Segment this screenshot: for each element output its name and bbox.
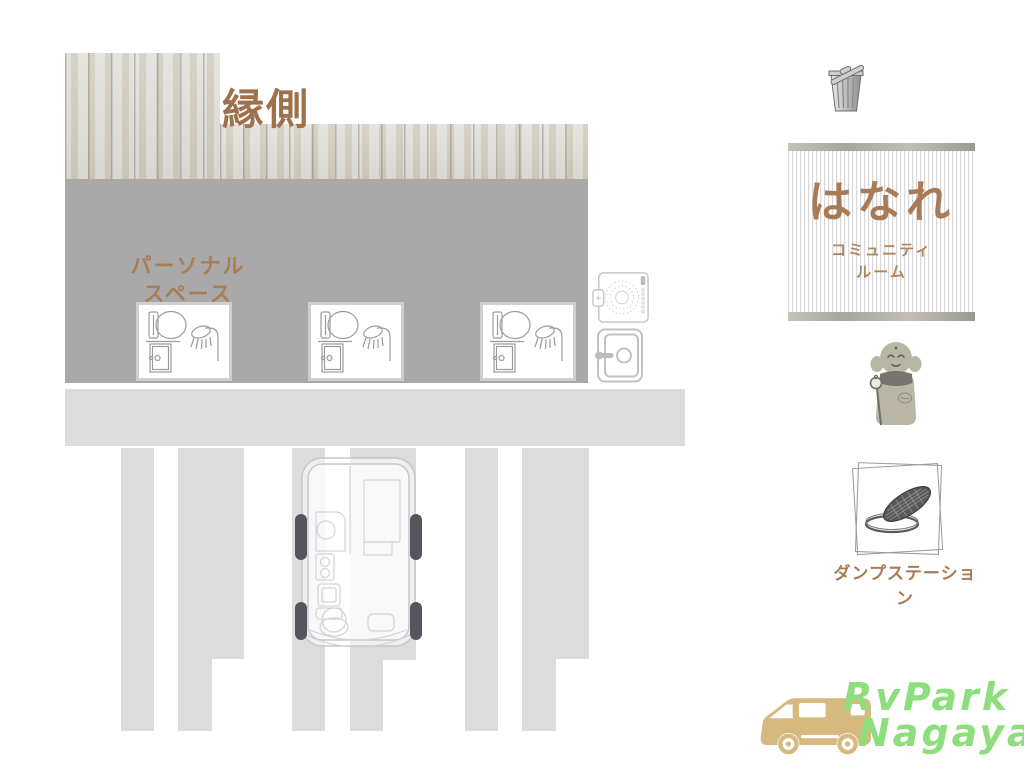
engawa-label: 縁側 bbox=[222, 76, 392, 137]
parking-stripe bbox=[465, 448, 498, 731]
personal-space-label: パーソナル スペース bbox=[118, 252, 258, 308]
hanare-sign: はなれ コミュニティ ルーム bbox=[788, 143, 975, 321]
sign-subtitle-line1: コミュニティ bbox=[831, 239, 932, 261]
washing-machine-icon bbox=[592, 271, 650, 324]
parking-stripe bbox=[212, 448, 244, 659]
jizo-statue-icon bbox=[864, 337, 926, 429]
toilet-shower-unit-icon bbox=[483, 305, 573, 378]
dump-station-label: ダンプステーション bbox=[830, 559, 980, 609]
parking-stripe bbox=[178, 448, 212, 731]
dump-station-icon bbox=[849, 458, 949, 560]
sign-panel: はなれ コミュニティ ルーム bbox=[788, 151, 975, 312]
parking-stripe bbox=[121, 448, 154, 731]
parking-stripe bbox=[522, 448, 556, 731]
sign-top-bar bbox=[788, 143, 975, 151]
driveway-band bbox=[65, 389, 685, 446]
personal-space-line1: パーソナル bbox=[118, 252, 258, 280]
toilet-shower-unit-icon bbox=[311, 305, 401, 378]
trash-can-icon bbox=[822, 57, 870, 113]
sign-subtitle-line2: ルーム bbox=[856, 261, 907, 283]
rv-top-view-icon bbox=[292, 454, 425, 652]
bath-unit-1 bbox=[139, 305, 229, 378]
engawa-deck-upper bbox=[65, 53, 220, 180]
toilet-shower-unit-icon bbox=[139, 305, 229, 378]
bath-unit-3 bbox=[483, 305, 573, 378]
bath-unit-2 bbox=[311, 305, 401, 378]
logo-text-line2: Nagaya bbox=[858, 714, 1024, 752]
sign-bottom-bar bbox=[788, 312, 975, 321]
door-icon bbox=[595, 327, 645, 384]
sign-title: はなれ bbox=[808, 181, 955, 225]
personal-space-line2: スペース bbox=[118, 280, 258, 308]
parking-stripe bbox=[556, 448, 589, 659]
